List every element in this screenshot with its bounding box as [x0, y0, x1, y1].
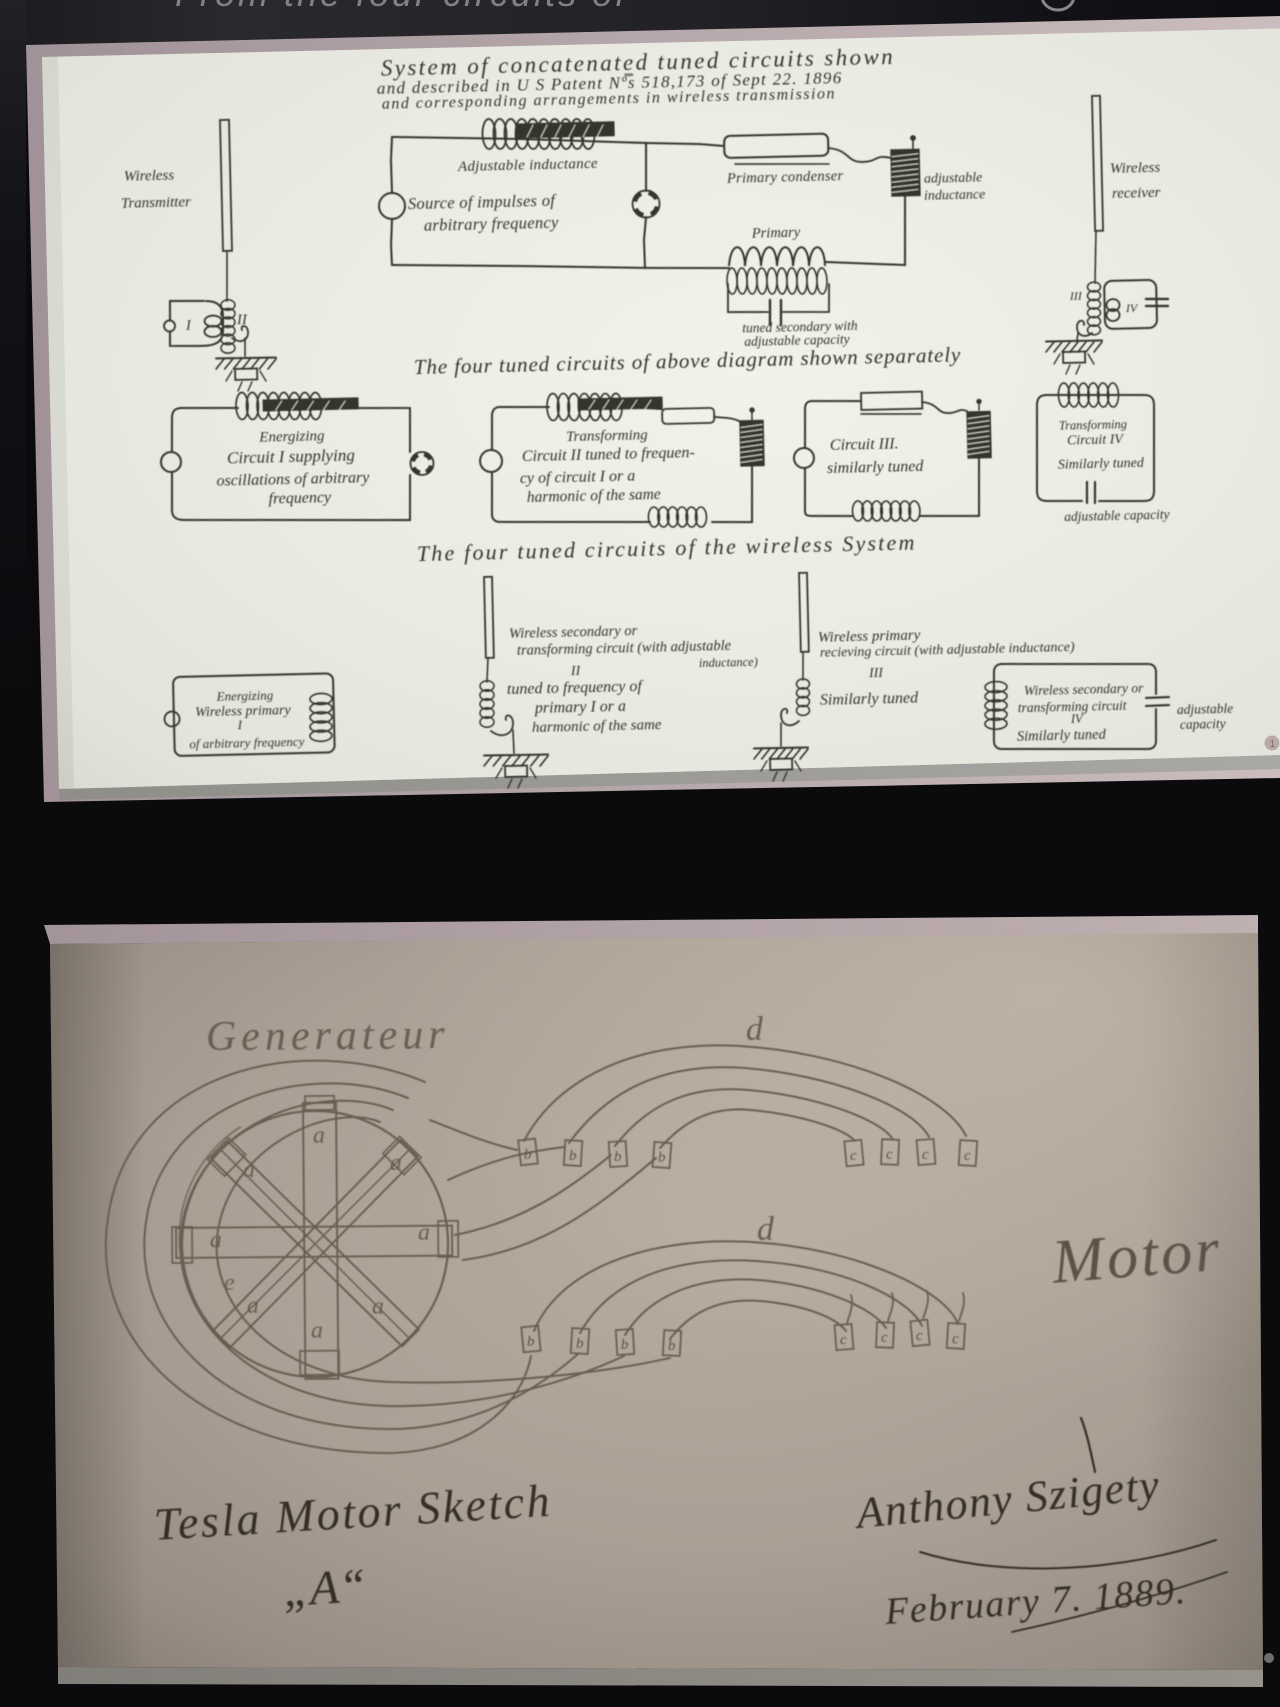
- svg-text:Similarly tuned: Similarly tuned: [820, 690, 920, 709]
- svg-text:Similarly tuned: Similarly tuned: [1058, 456, 1145, 473]
- svg-text:c: c: [952, 1331, 959, 1347]
- svg-text:c: c: [964, 1148, 971, 1164]
- svg-text:Circuit IV: Circuit IV: [1067, 432, 1125, 448]
- svg-text:b: b: [524, 1147, 532, 1163]
- svg-text:a: a: [247, 1293, 259, 1319]
- svg-text:II: II: [570, 664, 582, 679]
- svg-text:receiver: receiver: [1112, 185, 1161, 202]
- svg-text:d: d: [746, 1011, 764, 1048]
- svg-text:Wireless: Wireless: [124, 168, 175, 185]
- svg-text:Wireless: Wireless: [1110, 160, 1161, 177]
- svg-text:a: a: [311, 1318, 323, 1344]
- svg-text:c: c: [840, 1332, 847, 1348]
- svg-text:„A“: „A“: [281, 1559, 367, 1617]
- svg-text:Generateur: Generateur: [206, 1012, 450, 1060]
- svg-text:I: I: [237, 717, 243, 732]
- svg-text:inductance): inductance): [699, 655, 758, 670]
- svg-text:of arbitrary frequency: of arbitrary frequency: [189, 734, 305, 752]
- svg-text:d: d: [757, 1211, 775, 1248]
- svg-text:Wireless secondary or: Wireless secondary or: [509, 623, 638, 642]
- svg-text:inductance: inductance: [924, 188, 986, 204]
- svg-text:c: c: [850, 1148, 857, 1164]
- svg-text:Transforming: Transforming: [1059, 417, 1127, 433]
- svg-text:c: c: [886, 1147, 893, 1163]
- svg-text:harmonic of the same: harmonic of the same: [532, 717, 662, 736]
- svg-text:Primary condenser: Primary condenser: [726, 168, 844, 187]
- svg-text:From the four circuits of: From the four circuits of: [175, 0, 629, 14]
- svg-text:c: c: [881, 1330, 888, 1346]
- svg-text:adjustable: adjustable: [1177, 701, 1234, 717]
- svg-text:Motor: Motor: [1049, 1216, 1225, 1297]
- svg-text:Similarly tuned: Similarly tuned: [1017, 727, 1107, 745]
- svg-text:b: b: [569, 1148, 577, 1164]
- svg-text:Wireless secondary or: Wireless secondary or: [1024, 680, 1145, 698]
- svg-text:tuned to frequency of: tuned to frequency of: [507, 678, 645, 698]
- svg-text:1: 1: [1270, 739, 1276, 750]
- svg-text:III: III: [1069, 289, 1083, 303]
- svg-text:cy of circuit I or a: cy of circuit I or a: [520, 467, 636, 487]
- svg-text:a: a: [372, 1294, 384, 1320]
- svg-text:harmonic of the same: harmonic of the same: [527, 486, 661, 506]
- svg-text:c: c: [916, 1328, 923, 1344]
- svg-text:adjustable: adjustable: [924, 171, 983, 187]
- svg-text:Circuit I supplying: Circuit I supplying: [227, 446, 355, 468]
- svg-text:primary I or a: primary I or a: [534, 698, 626, 717]
- svg-text:b: b: [576, 1336, 584, 1352]
- svg-text:a: a: [313, 1123, 325, 1149]
- svg-text:oscillations of arbitrary: oscillations of arbitrary: [216, 469, 370, 490]
- svg-text:Primary: Primary: [751, 225, 801, 242]
- svg-text:c: c: [922, 1147, 929, 1163]
- svg-text:b: b: [621, 1337, 629, 1353]
- svg-text:frequency: frequency: [268, 489, 332, 507]
- svg-text:b: b: [668, 1338, 676, 1354]
- svg-text:IV: IV: [1125, 301, 1139, 315]
- svg-text:adjustable capacity: adjustable capacity: [1064, 507, 1170, 524]
- svg-text:a: a: [418, 1220, 430, 1246]
- svg-text:a: a: [390, 1150, 402, 1176]
- svg-text:Transmitter: Transmitter: [121, 194, 192, 212]
- svg-text:Energizing: Energizing: [258, 428, 325, 446]
- svg-text:Transforming: Transforming: [566, 427, 649, 445]
- svg-text:Wireless primary: Wireless primary: [195, 703, 292, 720]
- svg-text:Energizing: Energizing: [215, 687, 273, 703]
- svg-text:Adjustable inductance: Adjustable inductance: [457, 156, 598, 175]
- svg-text:II: II: [236, 312, 248, 328]
- svg-text:Source of impulses of: Source of impulses of: [408, 191, 558, 213]
- svg-text:Circuit III.: Circuit III.: [830, 435, 899, 454]
- svg-text:arbitrary frequency: arbitrary frequency: [424, 213, 560, 235]
- svg-text:b: b: [658, 1150, 666, 1166]
- svg-text:b: b: [614, 1149, 622, 1165]
- svg-text:capacity: capacity: [1180, 716, 1226, 732]
- svg-text:e: e: [224, 1270, 235, 1296]
- svg-text:IV: IV: [1070, 712, 1084, 726]
- svg-text:b: b: [527, 1334, 535, 1350]
- svg-text:similarly tuned: similarly tuned: [827, 458, 925, 477]
- svg-text:III: III: [868, 666, 885, 681]
